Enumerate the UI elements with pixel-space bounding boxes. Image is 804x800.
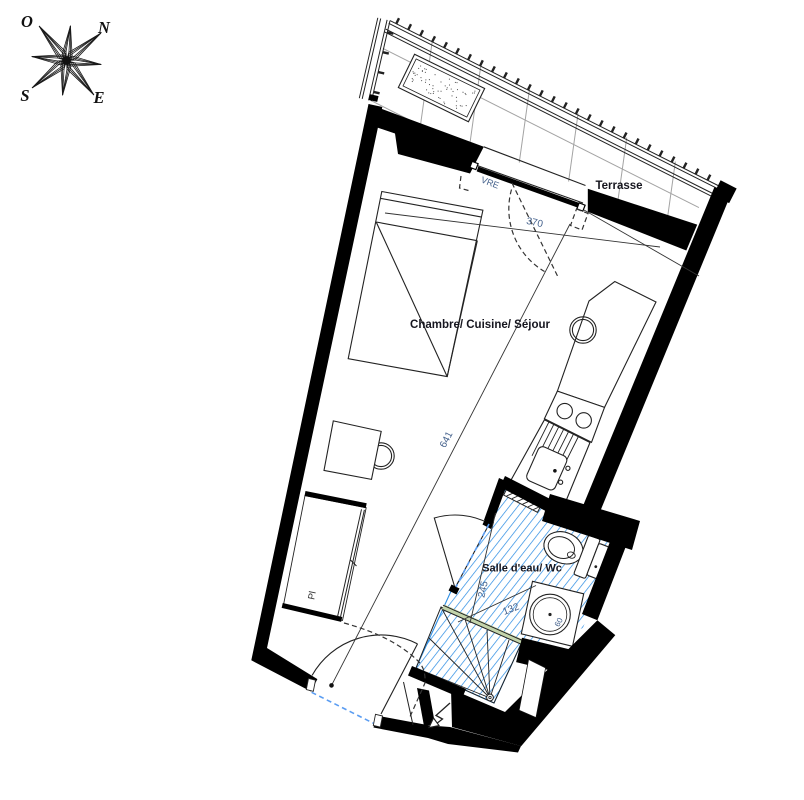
- svg-text:Terrasse: Terrasse: [595, 180, 642, 192]
- svg-text:Salle d'eau/ Wc: Salle d'eau/ Wc: [482, 563, 562, 575]
- svg-text:N: N: [97, 18, 111, 37]
- svg-text:S: S: [20, 86, 29, 105]
- svg-text:E: E: [92, 88, 104, 107]
- svg-text:O: O: [21, 12, 33, 31]
- svg-text:Chambre/ Cuisine/ Séjour: Chambre/ Cuisine/ Séjour: [410, 319, 550, 331]
